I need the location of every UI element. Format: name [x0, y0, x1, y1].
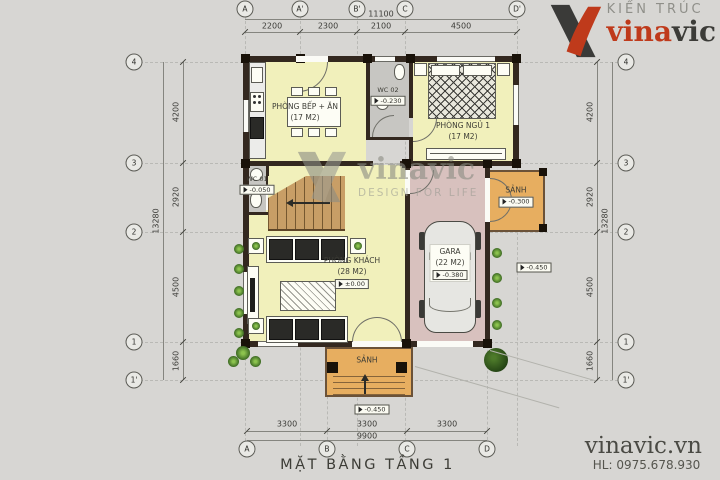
- side-porch-level: -0.300: [499, 197, 534, 207]
- garage-door-opening: [417, 341, 473, 347]
- column-pier: [483, 339, 492, 348]
- wc2-level: -0.230: [371, 96, 406, 106]
- brand-word-red: vina: [607, 15, 672, 48]
- column-pier: [512, 159, 521, 168]
- floor-plan-sheet: A A' B' C D' 11100 2200 2300 2100 4500 3…: [0, 0, 720, 480]
- dim-bottom-3: 3300: [437, 420, 457, 429]
- potted-plant: [252, 242, 260, 250]
- sofa-cushion: [321, 319, 345, 340]
- dim-top-2: 2300: [318, 22, 338, 31]
- dim-right-2: 2920: [586, 187, 595, 207]
- dim-line-left-segments: [183, 62, 184, 380]
- porch-column: [396, 362, 407, 373]
- grid-bubble-top-c: C: [397, 1, 414, 18]
- dim-line-top-segments: [245, 32, 517, 33]
- dim-left-3: 4500: [172, 277, 181, 297]
- living-area: (28 M2): [324, 266, 380, 277]
- dim-line-left-total: [163, 62, 164, 380]
- contact-block: vinavic.vn HL: 0975.678.930: [585, 434, 702, 472]
- dim-top-total: 11100: [368, 10, 393, 19]
- brand-wordmark: vinavic: [607, 18, 716, 46]
- wc1-level: -0.050: [240, 185, 275, 195]
- grid-bubble-left-1: 1: [126, 334, 143, 351]
- porch-column: [327, 362, 338, 373]
- dim-top-1: 2200: [262, 22, 282, 31]
- dim-right-4: 1660: [586, 351, 595, 371]
- watermark-tagline: DESIGN FOR LIFE: [358, 187, 478, 199]
- website-url: vinavic.vn: [585, 434, 702, 458]
- column-pier: [402, 339, 411, 348]
- dim-top-3: 2100: [371, 22, 391, 31]
- vinavic-watermark-logo-icon: [292, 148, 350, 206]
- dim-right-3: 4500: [586, 277, 595, 297]
- kitchen-area: (17 M2): [272, 112, 338, 123]
- grid-bubble-bottom-c: C: [399, 441, 416, 458]
- sofa-cushion: [295, 239, 319, 260]
- wc1-name: WC 01: [240, 175, 275, 185]
- column-pier: [406, 54, 415, 63]
- porch-steps: [333, 374, 405, 395]
- column-pier: [241, 159, 250, 168]
- front-porch-level-box: -0.450: [355, 397, 390, 416]
- grid-bubble-left-1p: 1': [126, 372, 143, 389]
- grid-bubble-bottom-b: B: [319, 441, 336, 458]
- garage-name: GARA: [433, 246, 468, 257]
- sofa-cushion: [269, 239, 293, 260]
- side-porch-name: SẢNH: [499, 185, 534, 196]
- garage-label: GARA (22 M2) -0.380: [430, 244, 471, 282]
- vinavic-logo-icon: [547, 2, 603, 60]
- dining-chair: [325, 128, 337, 137]
- sofa-cushion: [269, 319, 293, 340]
- tv-screen: [250, 278, 255, 312]
- front-porch-name: SẢNH: [356, 354, 377, 365]
- grid-bubble-left-3: 3: [126, 155, 143, 172]
- grid-bubble-right-1: 1: [618, 334, 635, 351]
- shrub: [234, 286, 244, 296]
- entry-direction-line: [364, 379, 366, 394]
- car-rear-window: [429, 298, 471, 312]
- wall: [243, 212, 269, 215]
- wall: [366, 56, 370, 118]
- grid-bubble-left-4: 4: [126, 54, 143, 71]
- dim-right-1: 4200: [586, 102, 595, 122]
- shrub: [234, 308, 244, 318]
- dim-line-right-segments: [597, 62, 598, 380]
- shrub: [492, 298, 502, 308]
- wc2-name: WC 02: [371, 86, 406, 96]
- wall: [366, 137, 413, 140]
- grid-bubble-bottom-d: D: [479, 441, 496, 458]
- shrub: [492, 320, 502, 330]
- dining-chair: [325, 87, 337, 96]
- potted-plant: [354, 242, 362, 250]
- yard-level: -0.450: [517, 263, 552, 273]
- dim-left-2: 2920: [172, 187, 181, 207]
- refrigerator: [250, 117, 264, 139]
- shrub: [228, 356, 239, 367]
- dim-right-total: 13280: [601, 208, 610, 233]
- shrub: [250, 356, 261, 367]
- kitchen-name: PHÒNG BẾP + ĂN: [272, 101, 338, 112]
- entry-direction-arrow: [361, 374, 369, 381]
- nightstand: [414, 63, 427, 76]
- shrub: [492, 273, 502, 283]
- shrub: [234, 328, 244, 338]
- grid-bubble-top-d1: D': [509, 1, 526, 18]
- dim-bottom-2: 3300: [357, 420, 377, 429]
- grid-bubble-right-2: 2: [618, 224, 635, 241]
- stove-burner: [253, 95, 256, 98]
- dining-chair: [308, 87, 320, 96]
- dim-left-total: 13280: [152, 208, 161, 233]
- kitchen-sink: [251, 67, 263, 83]
- garage-level: -0.380: [433, 270, 468, 280]
- bedroom-area: (17 M2): [436, 131, 490, 142]
- grid-bubble-top-a: A: [237, 1, 254, 18]
- dining-chair: [291, 87, 303, 96]
- shrub: [492, 248, 502, 258]
- grid-bubble-top-a1: A': [292, 1, 309, 18]
- dim-bottom-total: 9900: [357, 432, 377, 441]
- potted-plant: [252, 322, 260, 330]
- toilet: [394, 64, 405, 80]
- column-pier: [539, 168, 547, 176]
- watermark-brand: vinavic: [358, 155, 478, 185]
- column-pier: [363, 54, 372, 63]
- dining-chair: [291, 128, 303, 137]
- bedroom-name: PHÒNG NGỦ 1: [436, 120, 490, 131]
- wc1-label: WC 01 -0.050: [240, 175, 275, 196]
- grid-bubble-right-1p: 1': [618, 372, 635, 389]
- pillow: [463, 65, 492, 76]
- stove-burner: [258, 95, 261, 98]
- stove-burner: [253, 101, 256, 104]
- watermark: vinavic DESIGN FOR LIFE: [292, 148, 478, 206]
- pillow: [431, 65, 460, 76]
- plan-title: MẶT BẰNG TẦNG 1: [245, 457, 490, 473]
- dining-chair: [308, 128, 320, 137]
- kitchen-label: PHÒNG BẾP + ĂN (17 M2): [272, 101, 338, 124]
- dim-line-right-total: [612, 62, 613, 380]
- wc2-label: WC 02 -0.230: [371, 86, 406, 107]
- living-level: ±0.00: [335, 279, 369, 289]
- dim-left-4: 1660: [172, 351, 181, 371]
- dim-line-top-total: [245, 19, 517, 20]
- shrub: [234, 244, 244, 254]
- yard-level-box: -0.450: [517, 255, 552, 274]
- sofa-cushion: [295, 319, 319, 340]
- front-porch-level: -0.450: [355, 405, 390, 415]
- bedroom-label: PHÒNG NGỦ 1 (17 M2): [436, 120, 490, 143]
- window: [375, 56, 395, 62]
- front-porch-label: SẢNH: [356, 354, 377, 365]
- window: [437, 56, 495, 62]
- side-porch-label: SẢNH -0.300: [499, 185, 534, 208]
- garage-area: (22 M2): [433, 257, 468, 268]
- grid-bubble-left-2: 2: [126, 224, 143, 241]
- wall: [409, 56, 413, 118]
- column-pier: [512, 54, 521, 63]
- stove-burner: [258, 101, 261, 104]
- dim-top-4: 4500: [451, 22, 471, 31]
- window: [513, 85, 519, 125]
- brand-header: KIẾN TRÚC vinavic: [547, 2, 716, 60]
- living-label: PHÒNG KHÁCH (28 M2) ±0.00: [324, 255, 380, 289]
- dim-bottom-1: 3300: [277, 420, 297, 429]
- shrub: [234, 264, 244, 274]
- living-name: PHÒNG KHÁCH: [324, 255, 380, 266]
- column-pier: [483, 159, 492, 168]
- stair-railing: [268, 229, 345, 231]
- grid-bubble-right-3: 3: [618, 155, 635, 172]
- grid-bubble-top-b1: B': [349, 1, 366, 18]
- brand-word-dark: vic: [672, 15, 716, 48]
- column-pier: [539, 224, 547, 232]
- nightstand: [497, 63, 510, 76]
- grid-bubble-bottom-a: A: [239, 441, 256, 458]
- hotline: HL: 0975.678.930: [585, 458, 702, 472]
- dim-left-1: 4200: [172, 102, 181, 122]
